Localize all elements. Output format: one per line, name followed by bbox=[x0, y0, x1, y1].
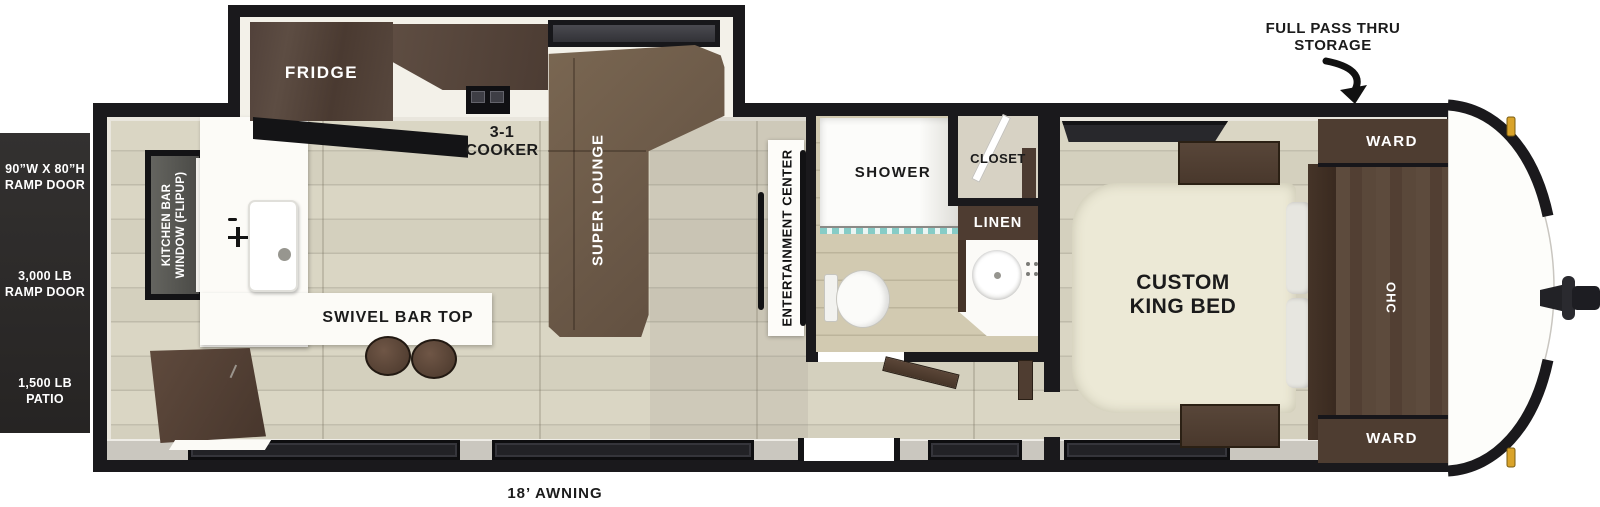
burner-icon bbox=[490, 91, 504, 103]
slideout-window bbox=[548, 20, 720, 47]
hallway-window bbox=[928, 440, 1022, 460]
patio-capacity-label: 1,500 LB PATIO bbox=[0, 375, 90, 408]
bathroom: SHOWER CLOSET LINEN bbox=[806, 106, 1048, 362]
shower-label: SHOWER bbox=[826, 164, 960, 181]
faucet-icon bbox=[236, 227, 240, 247]
patio-ramp-panel bbox=[150, 348, 266, 443]
bedroom-door-open bbox=[1018, 360, 1033, 400]
ward-label: WARD bbox=[1336, 430, 1448, 447]
patio-step bbox=[169, 440, 271, 450]
floorplan-diagram: 90”W X 80”H RAMP DOOR 3,000 LB RAMP DOOR… bbox=[0, 0, 1600, 507]
closet-label: CLOSET bbox=[958, 152, 1038, 167]
hitch-coupler-icon bbox=[1572, 286, 1600, 310]
bedroom-wall bbox=[1044, 437, 1060, 472]
fridge-label: FRIDGE bbox=[250, 63, 393, 83]
sofa-seam bbox=[573, 58, 575, 330]
bedroom-wall bbox=[1044, 106, 1060, 392]
overhead-cabinet-label: OHC bbox=[1384, 282, 1399, 314]
arrow-icon bbox=[1322, 56, 1374, 106]
king-bed-label: CUSTOM KING BED bbox=[1108, 271, 1258, 319]
entertainment-center-label: ENTERTAINMENT CENTER bbox=[780, 149, 795, 326]
super-lounge-label: SUPER LOUNGE bbox=[590, 134, 607, 266]
tv-icon bbox=[758, 192, 764, 310]
awning-side-window bbox=[492, 440, 754, 460]
ward-label: WARD bbox=[1336, 133, 1448, 150]
nightstand bbox=[1178, 141, 1280, 185]
bedroom-top-window bbox=[1062, 121, 1228, 142]
cooker-label: 3-1 COOKER bbox=[452, 124, 552, 161]
faucet-icon bbox=[1026, 262, 1030, 266]
marker-light-icon bbox=[1507, 117, 1515, 136]
pass-thru-storage-label: FULL PASS THRU STORAGE bbox=[1253, 20, 1413, 55]
marker-light-icon bbox=[1507, 448, 1515, 467]
bar-stool bbox=[411, 339, 457, 379]
closet-wall bbox=[948, 116, 958, 204]
sink-drain bbox=[994, 272, 1001, 279]
closet-wall bbox=[948, 198, 1038, 206]
ramp-door-panel: 90”W X 80”H RAMP DOOR 3,000 LB RAMP DOOR… bbox=[0, 133, 90, 433]
toilet-bowl bbox=[836, 270, 890, 328]
kitchen-sink bbox=[248, 200, 298, 292]
linen-label: LINEN bbox=[958, 215, 1038, 232]
ramp-door-capacity-label: 3,000 LB RAMP DOOR bbox=[0, 268, 90, 301]
swivel-bar-top-label: SWIVEL BAR TOP bbox=[312, 309, 484, 327]
shower-curtain bbox=[820, 226, 966, 234]
nightstand bbox=[1180, 404, 1280, 448]
entry-door-opening bbox=[798, 438, 900, 461]
kitchen-bar-window-label: KITCHEN BAR WINDOW (FLIPUP) bbox=[161, 170, 189, 280]
ramp-door-size-label: 90”W X 80”H RAMP DOOR bbox=[0, 161, 90, 194]
vanity-side-panel bbox=[958, 240, 966, 312]
cooktop bbox=[466, 86, 510, 114]
awning-label: 18’ AWNING bbox=[435, 485, 675, 502]
faucet-handle-icon bbox=[228, 218, 237, 221]
closet-door bbox=[971, 114, 1011, 183]
burner-icon bbox=[471, 91, 485, 103]
sink-drain bbox=[278, 248, 291, 261]
bar-stool bbox=[365, 336, 411, 376]
front-cap bbox=[1448, 98, 1600, 478]
